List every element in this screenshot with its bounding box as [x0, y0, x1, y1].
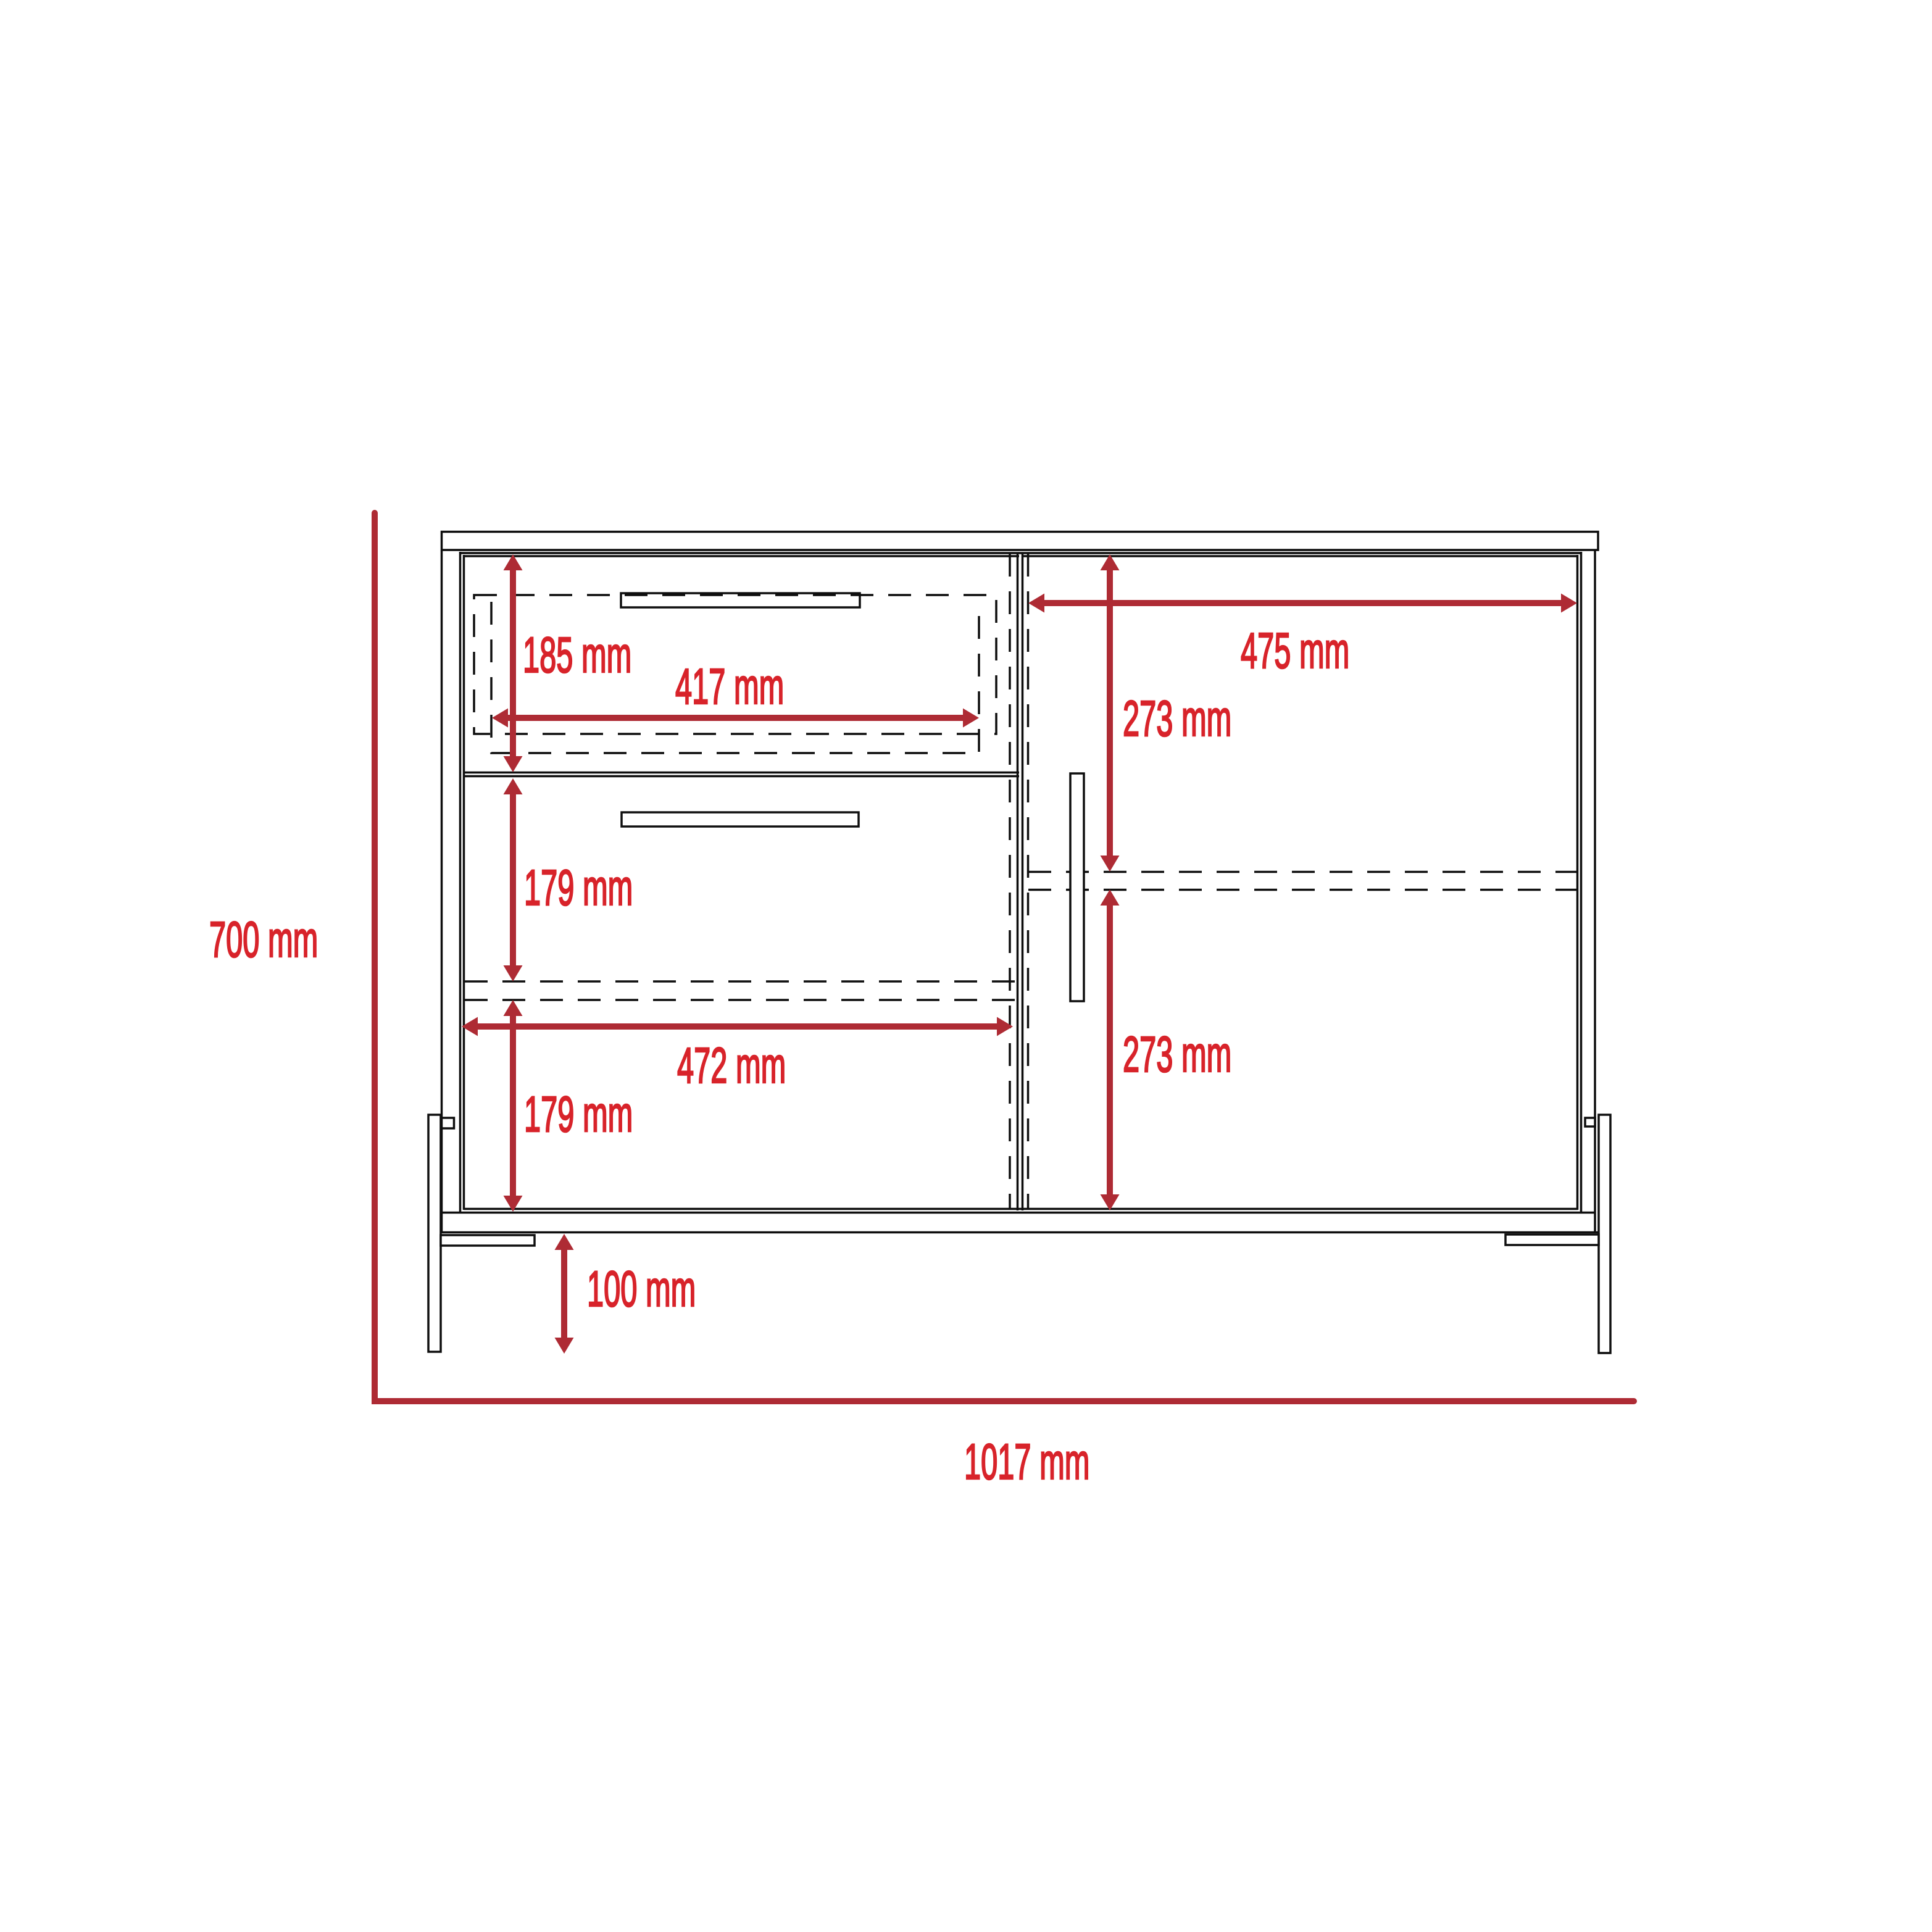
svg-text:475 mm: 475 mm: [1241, 623, 1349, 679]
svg-text:179 mm: 179 mm: [524, 860, 633, 916]
svg-text:273 mm: 273 mm: [1123, 691, 1231, 747]
svg-text:100 mm: 100 mm: [587, 1261, 696, 1317]
svg-text:185 mm: 185 mm: [523, 627, 631, 683]
svg-text:472 mm: 472 mm: [677, 1038, 786, 1094]
svg-text:273 mm: 273 mm: [1123, 1026, 1231, 1083]
svg-text:417 mm: 417 mm: [675, 659, 784, 715]
svg-text:700 mm: 700 mm: [209, 912, 318, 968]
svg-text:1017 mm: 1017 mm: [964, 1434, 1089, 1490]
svg-text:179 mm: 179 mm: [524, 1086, 633, 1143]
